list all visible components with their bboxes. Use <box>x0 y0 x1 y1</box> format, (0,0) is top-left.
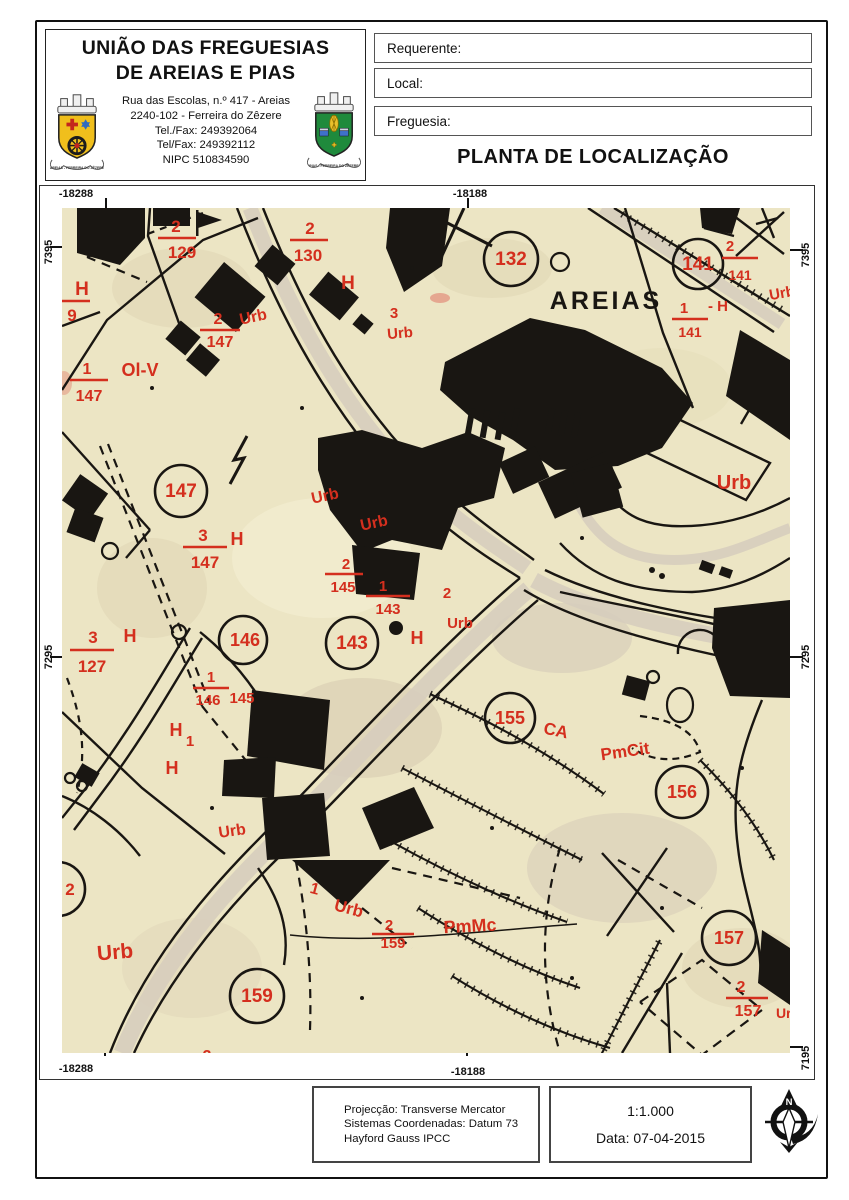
map-label: 2 <box>214 311 223 328</box>
areias-crest-icon: AREIAS - FERREIRA DO ZÊZERE <box>46 90 108 182</box>
map-label: 2 <box>171 217 180 236</box>
map-label: 147 <box>207 334 234 351</box>
map-label: 2 <box>305 219 314 238</box>
map-label: H <box>75 279 89 300</box>
map-label: 141 <box>728 267 752 283</box>
map-label: 2 <box>443 585 451 602</box>
map-label: 1 <box>207 669 215 686</box>
map-label: 1 <box>680 300 688 317</box>
map-label: 3 <box>390 305 398 322</box>
map-label: H <box>124 626 137 646</box>
map-label: 146 <box>230 630 260 650</box>
address-line: 2240-102 - Ferreira do Zêzere <box>106 109 306 124</box>
location-plan-sheet: UNIÃO DAS FREGUESIAS DE AREIAS E PIAS Ru… <box>0 0 849 1200</box>
local-label: Local: <box>387 76 423 91</box>
scale-box: 1:1.000 Data: 07-04-2015 <box>549 1086 752 1163</box>
org-address: Rua das Escolas, n.º 417 - Areias 2240-1… <box>106 94 306 168</box>
map-label: 3 <box>198 526 207 545</box>
freguesia-field[interactable]: Freguesia: <box>374 106 812 136</box>
map-label: 145 <box>229 690 254 707</box>
map-label: 2 <box>65 880 74 899</box>
coord-label: 7295 <box>800 634 812 680</box>
map-label: PmMc <box>443 915 497 938</box>
map-label: H <box>411 628 424 648</box>
map-label: 147 <box>191 553 219 572</box>
map-label: 3 <box>88 628 97 647</box>
map-label: 1 <box>379 578 387 595</box>
map-label: 157 <box>714 928 744 948</box>
map-label: Urb <box>386 324 413 343</box>
map-label: 159 <box>380 935 405 952</box>
map-label: 157 <box>735 1003 762 1020</box>
map-label: H <box>166 758 179 778</box>
map-label: 141 <box>682 254 714 275</box>
projection-info-box: Projecção: Transverse Mercator Sistemas … <box>312 1086 540 1163</box>
address-line: Rua das Escolas, n.º 417 - Areias <box>106 94 306 109</box>
map-label: 145 <box>330 579 355 596</box>
crest-motto: AREIAS - FERREIRA DO ZÊZERE <box>50 165 105 170</box>
coord-label: -18288 <box>46 188 106 200</box>
wheel-icon <box>69 137 85 153</box>
projection-line: Hayford Gauss IPCC <box>344 1132 538 1146</box>
local-field[interactable]: Local: <box>374 68 812 98</box>
pias-crest-icon: PIAS - FERREIRA DO ZÊZERE <box>303 88 365 180</box>
org-name: UNIÃO DAS FREGUESIAS DE AREIAS E PIAS <box>45 36 366 86</box>
map-label: H <box>341 273 355 294</box>
map-label: - H <box>708 298 728 315</box>
map-label: 2 <box>342 556 350 573</box>
map-label: 1 <box>83 361 92 378</box>
scale-value: 1:1.000 <box>627 1103 674 1119</box>
map-label: 2 <box>737 979 746 996</box>
wheat-sheaf-icon <box>330 115 339 131</box>
projection-line: Projecção: Transverse Mercator <box>344 1103 538 1117</box>
requerente-field[interactable]: Requerente: <box>374 33 812 63</box>
map-label: Urb <box>447 615 473 632</box>
map-label: 156 <box>667 782 697 802</box>
crest-motto: PIAS - FERREIRA DO ZÊZERE <box>309 163 359 168</box>
coord-label: 7195 <box>800 1035 812 1081</box>
address-line: Tel/Fax: 249392112 <box>106 138 306 153</box>
map-label: 143 <box>375 601 400 618</box>
coord-label: 7395 <box>800 232 812 278</box>
cadastral-map-image: AREIAS 2 129 H 9 2 147 Urb 1 147 Ol-V 2 … <box>62 208 790 1053</box>
map-label: 2 <box>726 238 734 255</box>
map-label: 141 <box>678 324 702 340</box>
projection-line: Sistemas Coordenadas: Datum 73 <box>344 1117 538 1131</box>
coord-label: 7395 <box>43 229 55 275</box>
map-label: 129 <box>168 243 196 262</box>
map-label: 130 <box>294 246 322 265</box>
map-label: Ol-V <box>121 360 158 380</box>
requerente-label: Requerente: <box>387 41 461 56</box>
coord-label: -18288 <box>46 1063 106 1075</box>
map-label: Urb <box>96 939 134 965</box>
map-label: 132 <box>495 249 527 270</box>
coord-label: 7295 <box>43 634 55 680</box>
north-arrow-icon: N <box>757 1088 821 1160</box>
coord-label: -18188 <box>438 1066 498 1078</box>
north-letter: N <box>786 1097 793 1108</box>
map-label: 143 <box>336 633 368 654</box>
place-name: AREIAS <box>550 287 662 315</box>
map-label: Urb <box>776 1005 790 1021</box>
map-label: 146 <box>195 692 220 709</box>
map-label: H <box>231 529 244 549</box>
map-label: 159 <box>241 986 273 1007</box>
map-label: 147 <box>165 481 197 502</box>
map-label: H <box>170 720 183 740</box>
org-name-line1: UNIÃO DAS FREGUESIAS <box>45 36 366 61</box>
map-label: 2 <box>203 1048 212 1053</box>
map-label: 2 <box>385 917 393 934</box>
address-line: Tel./Fax: 249392064 <box>106 124 306 139</box>
freguesia-label: Freguesia: <box>387 114 451 129</box>
org-name-line2: DE AREIAS E PIAS <box>45 61 366 86</box>
map-label: Urb <box>717 472 751 494</box>
mural-crown-icon <box>58 95 96 113</box>
date-value: Data: 07-04-2015 <box>596 1130 705 1146</box>
map-label: 9 <box>67 306 76 325</box>
map-label: Urb <box>768 283 790 304</box>
map-label: 1 <box>186 733 194 750</box>
page-title: PLANTA DE LOCALIZAÇÃO <box>374 146 812 169</box>
mural-crown-icon <box>315 93 353 111</box>
address-line: NIPC 510834590 <box>106 153 306 168</box>
map-label: 127 <box>78 657 106 676</box>
map-label: 147 <box>76 388 103 405</box>
map-label: 155 <box>495 708 525 728</box>
coord-label: -18188 <box>440 188 500 200</box>
